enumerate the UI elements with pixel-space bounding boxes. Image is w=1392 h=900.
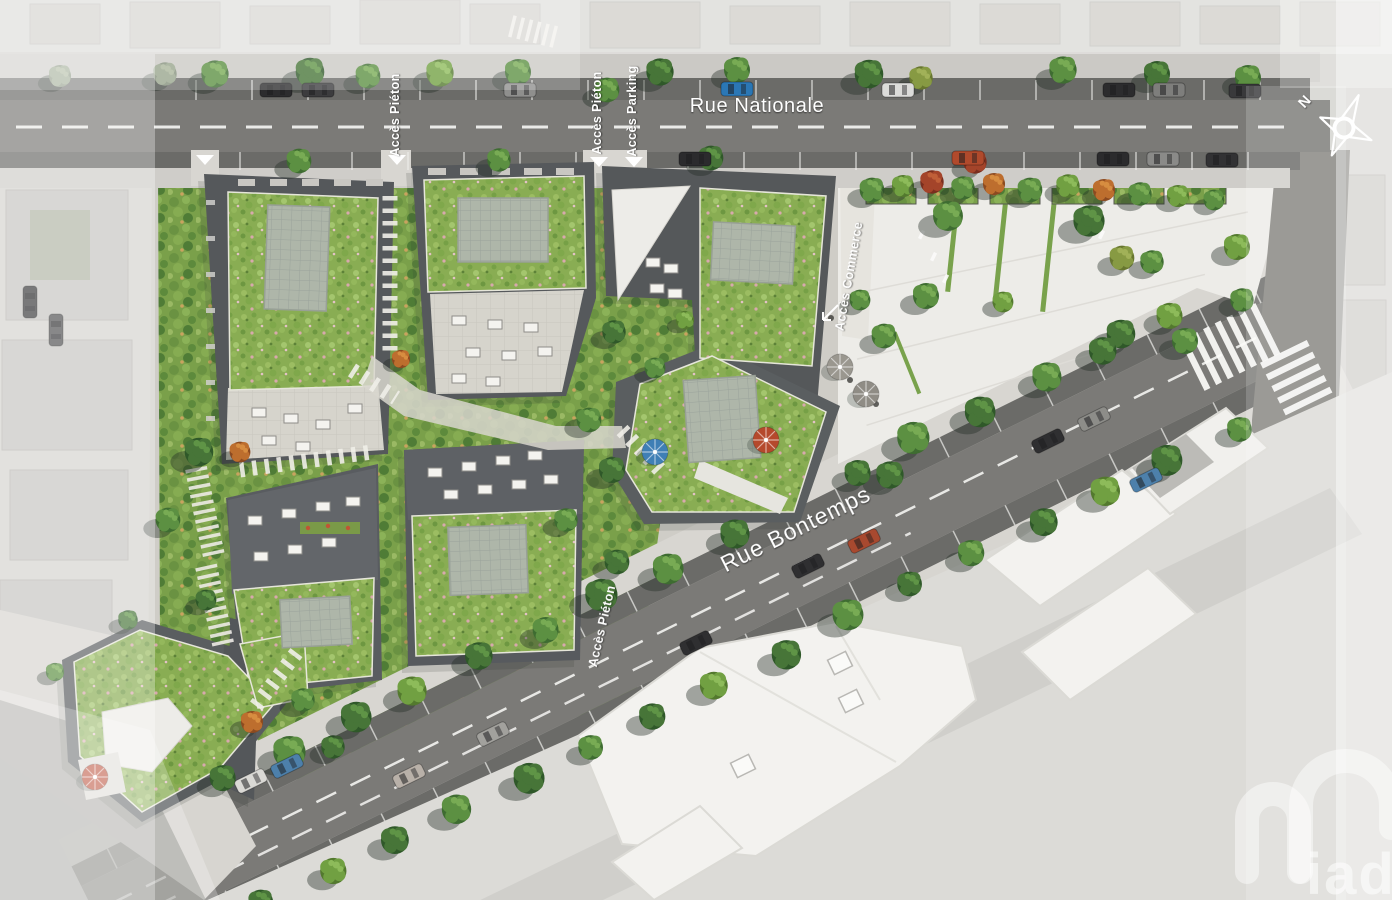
tree-canopy (1180, 330, 1186, 336)
skylight (462, 462, 476, 471)
car-body (1153, 83, 1185, 97)
tree-canopy (888, 331, 894, 337)
skylight (348, 404, 362, 413)
tree-canopy (209, 596, 214, 601)
car-body (679, 152, 711, 166)
skylight (528, 451, 542, 460)
tree-canopy (611, 85, 617, 91)
tree-canopy (562, 510, 567, 515)
tree-canopy (664, 67, 670, 73)
tree-canopy (930, 291, 936, 297)
tree-canopy (612, 552, 618, 558)
tree-canopy (503, 156, 508, 161)
car (1206, 153, 1238, 167)
tree-canopy (1072, 182, 1077, 187)
tree-canopy (1235, 419, 1241, 425)
tree-canopy (1110, 486, 1117, 493)
tree-canopy (1136, 184, 1141, 189)
car-glass (1173, 85, 1178, 95)
car-glass (1213, 155, 1219, 165)
tree-canopy (451, 797, 458, 804)
tree-canopy (985, 406, 992, 413)
tree-canopy (1172, 454, 1179, 461)
tree-canopy (1041, 365, 1048, 372)
car-body (1206, 153, 1238, 167)
tree-canopy (594, 743, 600, 749)
car-glass (1167, 154, 1172, 164)
umbrella-pole (764, 438, 768, 442)
skylight (316, 502, 330, 511)
tree-canopy (299, 690, 304, 695)
skylight (282, 509, 296, 518)
tree-canopy (879, 326, 885, 332)
roof-panel (711, 222, 796, 284)
tree-canopy (1064, 176, 1069, 181)
car (1097, 152, 1129, 166)
tree-canopy (541, 619, 547, 625)
tree-canopy (791, 649, 798, 656)
tree-canopy (925, 74, 930, 79)
roof-panel (448, 525, 528, 596)
car (721, 82, 753, 96)
tree-canopy (523, 765, 530, 772)
balcony (428, 168, 446, 175)
balcony (238, 179, 255, 186)
tree-canopy (1181, 192, 1186, 197)
tree-canopy (337, 866, 343, 872)
roof-panel (458, 198, 548, 262)
tree-canopy (218, 767, 224, 773)
car-glass (1123, 85, 1128, 95)
roof-panel (264, 205, 330, 311)
tree-canopy (990, 175, 995, 180)
umbrella-pole (864, 392, 868, 396)
tree-canopy (618, 328, 623, 333)
tree-canopy (863, 296, 868, 301)
tree-canopy (328, 860, 334, 866)
car (1147, 152, 1179, 166)
flowers (346, 526, 350, 530)
tree-canopy (867, 180, 873, 186)
tree-canopy (1156, 258, 1161, 263)
tree-canopy (1174, 311, 1180, 317)
skylight (466, 348, 480, 357)
car (679, 152, 711, 166)
balcony (302, 179, 319, 186)
skylight (538, 347, 552, 356)
tree-canopy (227, 773, 233, 779)
car-glass (686, 154, 692, 164)
tree-canopy (921, 285, 927, 291)
balcony (334, 179, 351, 186)
tree-canopy (417, 685, 424, 692)
skylight (668, 289, 682, 298)
tree-canopy (1174, 187, 1179, 192)
tree-canopy (1107, 186, 1112, 191)
tree-canopy (337, 743, 342, 748)
tree-canopy (918, 432, 925, 439)
acces-pieton-label-top-1: Accès Piéton (388, 73, 402, 156)
skylight (486, 377, 500, 386)
tree-canopy (732, 59, 738, 65)
umbrella-pole (653, 450, 657, 454)
tree-canopy (1161, 69, 1167, 75)
skylight (296, 442, 310, 451)
car-glass (1160, 85, 1166, 95)
skylight (346, 497, 360, 506)
tree-canopy (647, 705, 653, 711)
tree-canopy (913, 579, 919, 585)
car-glass (1226, 155, 1231, 165)
roof-hatch (206, 236, 215, 241)
car-body (1103, 83, 1135, 97)
skylight (444, 490, 458, 499)
tree-canopy (202, 591, 207, 596)
tree-canopy (255, 718, 260, 723)
tree-canopy (283, 738, 290, 745)
skylight (512, 480, 526, 489)
tree-canopy (593, 415, 599, 421)
rue-nationale-label: Rue Nationale (690, 95, 825, 117)
tree-canopy (350, 704, 357, 711)
tree-canopy (1048, 517, 1054, 523)
car-body (1147, 152, 1179, 166)
car-glass (1154, 154, 1160, 164)
tree-canopy (894, 470, 900, 476)
tree-canopy (1210, 191, 1215, 196)
tree-canopy (729, 522, 736, 529)
car-glass (1117, 154, 1122, 164)
tree-canopy (856, 291, 861, 296)
tree-canopy (997, 180, 1002, 185)
tree-canopy (194, 440, 201, 447)
tree-canopy (1189, 336, 1195, 342)
tree-canopy (1025, 180, 1031, 186)
tree-canopy (899, 177, 904, 182)
tree-canopy (236, 443, 241, 448)
tree-canopy (398, 351, 402, 355)
skylight (284, 414, 298, 423)
tree-canopy (1100, 479, 1107, 486)
tree-canopy (905, 574, 911, 580)
tree-canopy (718, 680, 724, 686)
tree-canopy (651, 359, 656, 364)
tree-canopy (1238, 290, 1243, 295)
tree-canopy (550, 625, 556, 631)
tree-canopy (1126, 253, 1132, 259)
tree-canopy (474, 644, 480, 650)
acces-pieton-label-top-2: Accès Piéton (590, 71, 604, 154)
roof-hatch (206, 200, 215, 205)
tree-canopy (1217, 196, 1222, 201)
balcony (460, 168, 478, 175)
tree-canopy (658, 364, 663, 369)
tree-canopy (534, 772, 541, 779)
tree-canopy (483, 651, 489, 657)
site-plan-image: Rue Nationale Rue Bontemps Accès Piéton … (0, 0, 1392, 900)
tree-canopy (495, 150, 500, 155)
tree-canopy (1097, 339, 1103, 345)
tree-canopy (688, 317, 692, 321)
tree-canopy (741, 65, 747, 71)
tree-canopy (942, 203, 949, 210)
balcony (366, 179, 383, 186)
tree-canopy (203, 447, 210, 454)
tree-canopy (307, 696, 312, 701)
tree-canopy (966, 542, 972, 548)
brand-watermark-text: iad (1306, 842, 1392, 900)
tree-canopy (936, 178, 941, 183)
tree-canopy (1094, 215, 1101, 222)
tree-canopy (584, 410, 590, 416)
tree-canopy (303, 156, 309, 162)
skylight (262, 436, 276, 445)
car-glass (972, 153, 977, 163)
car-glass (741, 84, 746, 94)
roof-hatch (206, 272, 215, 277)
skylight (452, 316, 466, 325)
skylight (428, 468, 442, 477)
tree-canopy (243, 448, 248, 453)
car (1153, 83, 1185, 97)
tree-canopy (959, 178, 964, 183)
car-glass (889, 85, 895, 95)
tree-canopy (406, 679, 413, 686)
skylight (322, 538, 336, 547)
tree-canopy (294, 151, 300, 157)
balcony (270, 179, 287, 186)
tree-canopy (1034, 185, 1040, 191)
car-glass (699, 154, 704, 164)
car-glass (1110, 85, 1116, 95)
tree-canopy (876, 185, 882, 191)
skylight (288, 545, 302, 554)
tree-canopy (570, 516, 575, 521)
car-body (882, 83, 914, 97)
roof-panel (280, 596, 352, 648)
tree-canopy (917, 68, 922, 73)
skylight (316, 420, 330, 429)
tree-canopy (621, 557, 627, 563)
skylight (488, 320, 502, 329)
tree-canopy (781, 642, 788, 649)
acces-parking-label: Accès Parking (625, 65, 639, 156)
car-glass (728, 84, 734, 94)
tree-canopy (586, 737, 592, 743)
tree-canopy (862, 468, 868, 474)
tree-canopy (1243, 67, 1249, 73)
tree-canopy (708, 674, 714, 680)
tree-canopy (853, 462, 859, 468)
tree-canopy (682, 312, 686, 316)
tree-canopy (361, 711, 368, 718)
skylight (478, 485, 492, 494)
tree-canopy (739, 528, 746, 535)
car (1103, 83, 1135, 97)
tree-canopy (1038, 510, 1044, 516)
skylight (524, 323, 538, 332)
car-body (1097, 152, 1129, 166)
tree-canopy (1161, 447, 1168, 454)
skylight (544, 475, 558, 484)
tree-canopy (616, 465, 622, 471)
skylight (650, 284, 664, 293)
tree-canopy (1125, 329, 1132, 336)
car (952, 151, 984, 165)
balcony (556, 168, 574, 175)
tree-canopy (1067, 65, 1073, 71)
skylight (248, 516, 262, 525)
tree-canopy (842, 602, 849, 609)
veil (1246, 86, 1346, 900)
tree-canopy (607, 459, 613, 465)
skylight (252, 408, 266, 417)
tree-canopy (610, 322, 615, 327)
tree-canopy (673, 563, 680, 570)
car-glass (959, 153, 965, 163)
tree-canopy (975, 548, 981, 554)
tree-canopy (1165, 305, 1171, 311)
tree-canopy (1107, 346, 1113, 352)
roof-hatch (206, 416, 215, 421)
tree-canopy (595, 581, 602, 588)
tree-canopy (1006, 298, 1011, 303)
flowers (306, 526, 310, 530)
car-body (721, 82, 753, 96)
skylight (496, 456, 510, 465)
tree-canopy (873, 69, 880, 76)
tree-canopy (1144, 190, 1149, 195)
roof-hatch (206, 380, 215, 385)
tree-canopy (1083, 208, 1090, 215)
tree-canopy (974, 399, 981, 406)
tree-canopy (907, 424, 914, 431)
umbrella-pole (838, 365, 842, 369)
tree-canopy (399, 835, 405, 841)
tree-canopy (1051, 371, 1058, 378)
tree-canopy (1117, 248, 1123, 254)
tree-canopy (885, 463, 891, 469)
site-plan-svg: Rue Nationale Rue Bontemps Accès Piéton … (0, 0, 1392, 900)
tree-canopy (248, 713, 253, 718)
tree-canopy (390, 828, 396, 834)
tree-canopy (163, 510, 169, 516)
tree-canopy (1152, 63, 1158, 69)
tree-canopy (662, 556, 669, 563)
tree-canopy (1058, 58, 1064, 64)
tree-canopy (864, 62, 871, 69)
skylight (254, 552, 268, 561)
car-glass (902, 85, 907, 95)
skylight (502, 351, 516, 360)
tree-canopy (1148, 252, 1153, 257)
car (882, 83, 914, 97)
car-glass (1104, 154, 1110, 164)
tree-canopy (1252, 73, 1258, 79)
tree-canopy (928, 172, 933, 177)
skylight (646, 258, 660, 267)
roof-hatch (206, 308, 215, 313)
tree-canopy (329, 737, 334, 742)
tree-canopy (461, 804, 468, 811)
tree-canopy (1116, 322, 1123, 329)
tree-canopy (853, 609, 860, 616)
tree-canopy (967, 184, 972, 189)
tree-canopy (953, 210, 960, 217)
skylight (664, 264, 678, 273)
flowers (326, 524, 330, 528)
tree-canopy (404, 356, 408, 360)
tree-canopy (1232, 236, 1238, 242)
tree-canopy (1100, 181, 1105, 186)
tree-canopy (999, 293, 1004, 298)
veil (1280, 0, 1392, 88)
tree-canopy (256, 891, 262, 897)
balcony (524, 168, 542, 175)
tree-canopy (715, 153, 721, 159)
tree-canopy (294, 746, 301, 753)
tree-canopy (656, 712, 662, 718)
tree-canopy (172, 515, 178, 521)
tree-canopy (655, 60, 661, 66)
car-glass (1236, 86, 1242, 96)
skylight (452, 374, 466, 383)
roof-hatch (206, 344, 215, 349)
car-body (952, 151, 984, 165)
